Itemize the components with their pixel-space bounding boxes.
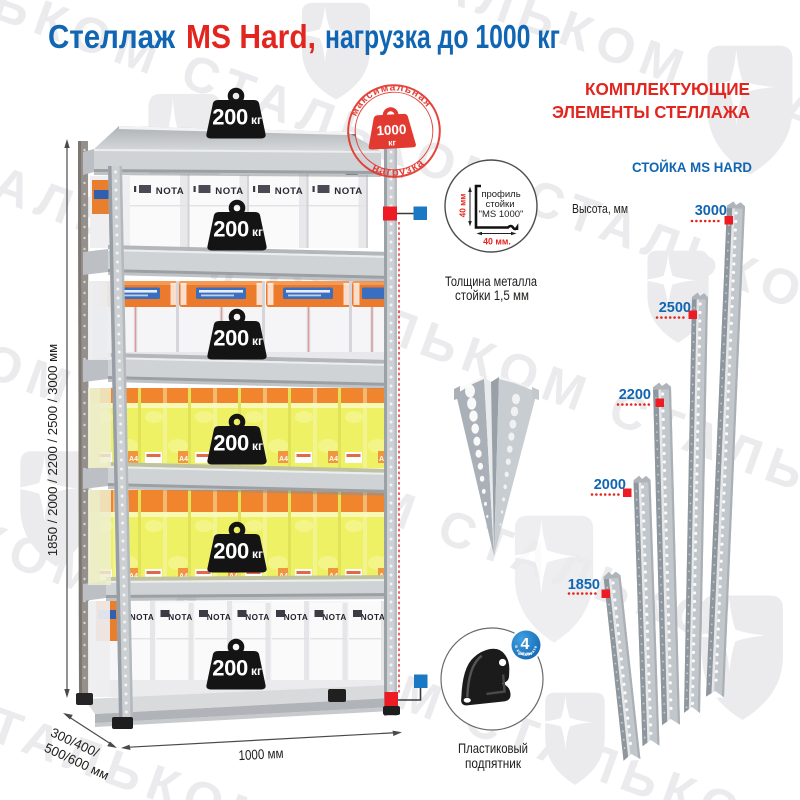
- svg-text:подпятник: подпятник: [465, 755, 522, 771]
- svg-text:3000: 3000: [695, 203, 727, 219]
- svg-text:максимальная: максимальная: [346, 77, 435, 119]
- svg-text:КОМПЛЕКТУЮЩИЕ: КОМПЛЕКТУЮЩИЕ: [585, 79, 750, 99]
- svg-text:A4: A4: [129, 456, 138, 463]
- svg-text:нагрузка до 1000 кг: нагрузка до 1000 кг: [325, 19, 560, 56]
- svg-text:200: 200: [213, 217, 249, 242]
- svg-text:40 мм: 40 мм: [458, 194, 468, 218]
- svg-text:NOTA: NOTA: [361, 613, 386, 622]
- svg-text:кг: кг: [252, 439, 263, 453]
- svg-text:ЭЛЕМЕНТЫ СТЕЛЛАЖА: ЭЛЕМЕНТЫ СТЕЛЛАЖА: [552, 102, 750, 122]
- svg-text:NOTA: NOTA: [207, 613, 232, 622]
- svg-text:200: 200: [213, 431, 249, 456]
- svg-text:Стеллаж: Стеллаж: [48, 19, 176, 56]
- svg-text:NOTA: NOTA: [130, 613, 155, 622]
- svg-text:200: 200: [212, 105, 248, 130]
- svg-text:200: 200: [213, 326, 249, 351]
- svg-text:MS Hard,: MS Hard,: [186, 19, 316, 56]
- svg-text:1850: 1850: [568, 577, 600, 593]
- svg-text:200: 200: [213, 539, 249, 564]
- svg-text:A4: A4: [179, 456, 188, 463]
- svg-text:NOTA: NOTA: [168, 613, 193, 622]
- svg-text:NOTA: NOTA: [275, 186, 303, 197]
- svg-text:2000: 2000: [594, 477, 626, 493]
- svg-text:1000 мм: 1000 мм: [238, 745, 284, 763]
- svg-text:NOTA: NOTA: [245, 613, 270, 622]
- svg-text:NOTA: NOTA: [215, 186, 243, 197]
- svg-text:NOTA: NOTA: [284, 613, 309, 622]
- svg-text:стойки 1,5 мм: стойки 1,5 мм: [455, 288, 529, 303]
- svg-text:NOTA: NOTA: [322, 613, 347, 622]
- svg-text:кг: кг: [252, 334, 263, 348]
- svg-text:200: 200: [212, 656, 248, 681]
- svg-text:2500: 2500: [659, 300, 691, 316]
- svg-text:Пластиковый: Пластиковый: [458, 740, 528, 756]
- svg-text:40 мм.: 40 мм.: [483, 237, 511, 247]
- svg-text:СТОЙКА MS HARD: СТОЙКА MS HARD: [632, 160, 752, 175]
- svg-text:2200: 2200: [619, 387, 651, 403]
- svg-text:кг: кг: [252, 547, 263, 561]
- svg-text:1000: 1000: [376, 122, 407, 139]
- svg-text:Высота, мм: Высота, мм: [572, 201, 628, 216]
- svg-text:кг: кг: [388, 137, 397, 147]
- svg-text:A4: A4: [329, 456, 338, 463]
- svg-text:Толщина металла: Толщина металла: [445, 274, 537, 289]
- svg-text:кг: кг: [251, 113, 262, 127]
- svg-text:кг: кг: [252, 225, 263, 239]
- svg-text:"MS 1000": "MS 1000": [479, 209, 524, 220]
- svg-text:кг: кг: [251, 664, 262, 678]
- svg-text:A4: A4: [279, 456, 288, 463]
- svg-text:NOTA: NOTA: [334, 186, 362, 197]
- svg-text:1850 / 2000 / 2200 / 2500 / 30: 1850 / 2000 / 2200 / 2500 / 3000 мм: [45, 344, 60, 556]
- svg-text:NOTA: NOTA: [156, 186, 184, 197]
